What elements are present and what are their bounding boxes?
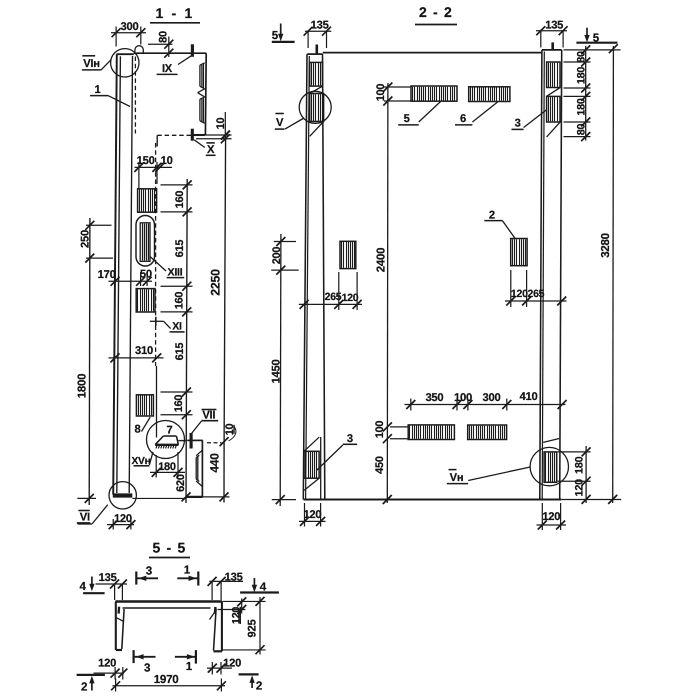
svg-text:100: 100 [374,421,386,439]
svg-text:620: 620 [175,474,187,492]
svg-text:4: 4 [260,581,267,594]
svg-text:5: 5 [593,32,600,45]
svg-text:120: 120 [511,288,528,300]
svg-text:2 - 2: 2 - 2 [419,4,453,20]
svg-text:450: 450 [374,456,386,474]
svg-text:180: 180 [576,98,588,116]
svg-text:1: 1 [95,84,101,96]
svg-text:80: 80 [575,51,587,63]
svg-text:135: 135 [99,572,117,584]
svg-text:350: 350 [425,392,443,404]
svg-text:180: 180 [158,461,176,473]
svg-text:925: 925 [247,620,259,638]
svg-text:200: 200 [271,247,283,265]
svg-text:2: 2 [489,210,495,222]
svg-text:1970: 1970 [154,673,179,686]
svg-text:120: 120 [114,513,132,525]
svg-text:310: 310 [135,345,153,357]
svg-text:410: 410 [520,391,538,403]
svg-text:1: 1 [184,564,191,577]
svg-text:160: 160 [173,395,185,413]
svg-text:7: 7 [167,425,173,437]
svg-text:V: V [276,117,284,129]
svg-text:IX: IX [162,63,173,75]
svg-text:5 - 5: 5 - 5 [152,540,186,556]
svg-text:2400: 2400 [376,248,388,273]
svg-text:VIн: VIн [83,58,100,70]
svg-text:3: 3 [144,662,151,675]
svg-text:300: 300 [483,392,501,404]
svg-text:2: 2 [256,680,262,693]
svg-text:615: 615 [174,240,186,258]
svg-text:2: 2 [81,681,87,694]
svg-text:3280: 3280 [600,233,612,258]
svg-text:X: X [207,144,215,156]
svg-text:615: 615 [174,343,186,361]
svg-text:3: 3 [347,433,353,445]
svg-text:VII: VII [202,410,215,422]
svg-text:6: 6 [460,113,466,125]
svg-text:1 - 1: 1 - 1 [155,5,194,21]
svg-text:XIII: XIII [168,267,183,279]
svg-text:10: 10 [215,118,227,130]
svg-text:250: 250 [80,230,92,248]
svg-text:1: 1 [186,660,193,673]
svg-text:2250: 2250 [209,269,223,296]
svg-text:VI: VI [80,512,90,524]
svg-text:135: 135 [311,20,329,32]
svg-text:100: 100 [375,84,387,102]
svg-text:120: 120 [342,292,359,304]
svg-text:170: 170 [98,269,116,281]
svg-text:300: 300 [121,21,139,33]
svg-text:1800: 1800 [77,374,89,399]
svg-text:5: 5 [272,29,279,42]
svg-text:80: 80 [157,31,169,43]
svg-text:440: 440 [207,453,221,473]
svg-text:5: 5 [404,113,410,125]
svg-text:8: 8 [135,424,141,436]
svg-text:180: 180 [576,67,588,85]
svg-text:160: 160 [173,292,185,310]
svg-text:180: 180 [574,456,586,474]
svg-text:135: 135 [545,20,563,32]
svg-text:3: 3 [515,118,521,130]
svg-text:265: 265 [528,288,545,300]
svg-text:3: 3 [146,565,153,578]
svg-text:120: 120 [98,658,116,670]
svg-text:1450: 1450 [271,360,283,384]
svg-text:XI: XI [172,321,182,333]
svg-text:160: 160 [174,191,186,209]
svg-text:Vн: Vн [450,472,464,484]
svg-text:80: 80 [575,124,587,136]
svg-text:4: 4 [79,580,86,593]
